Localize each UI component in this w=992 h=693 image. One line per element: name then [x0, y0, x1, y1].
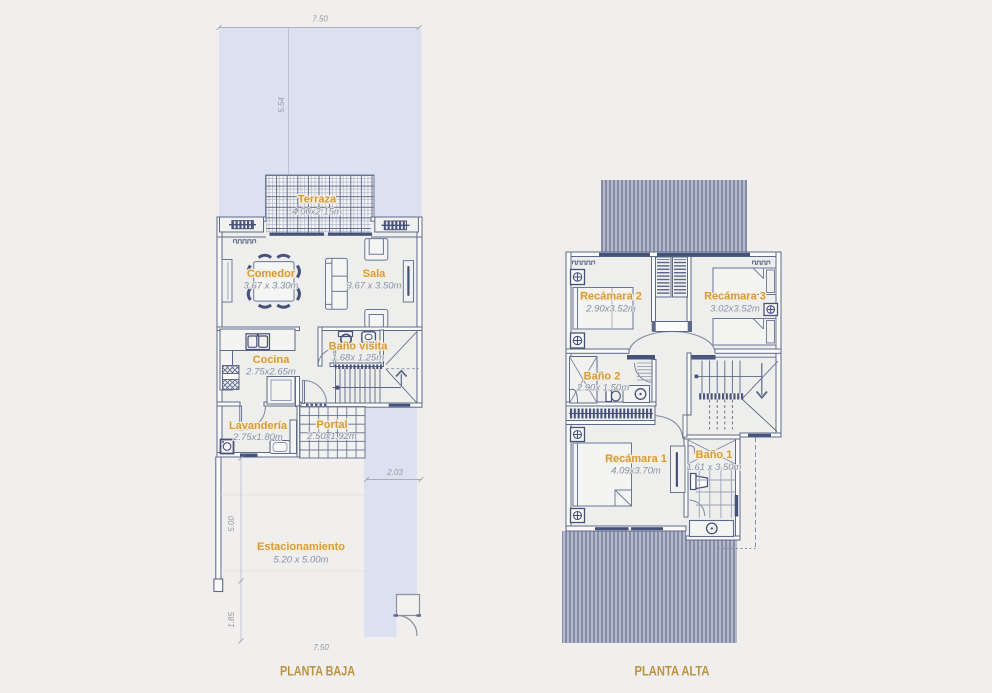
- svg-text:Portal: Portal: [316, 419, 347, 431]
- svg-text:Recámara 3: Recámara 3: [704, 291, 766, 303]
- svg-text:Terraza: Terraza: [298, 194, 337, 206]
- svg-text:Baño visita: Baño visita: [329, 341, 389, 353]
- svg-text:2.90x3.52m: 2.90x3.52m: [585, 304, 636, 315]
- svg-text:Estacionamiento: Estacionamiento: [257, 541, 345, 553]
- svg-text:7.50: 7.50: [312, 15, 328, 24]
- svg-text:4.00x2.15m: 4.00x2.15m: [292, 207, 342, 218]
- svg-text:1.61 x 3.50m: 1.61 x 3.50m: [687, 462, 742, 473]
- svg-text:5.00: 5.00: [227, 516, 236, 532]
- svg-text:5.54: 5.54: [277, 97, 286, 113]
- svg-text:Sala: Sala: [363, 268, 387, 280]
- svg-text:Baño 1: Baño 1: [696, 449, 733, 461]
- svg-text:2.90x 1.50m: 2.90x 1.50m: [576, 383, 629, 394]
- svg-text:7.50: 7.50: [313, 643, 329, 652]
- svg-text:1.68x 1.25m: 1.68x 1.25m: [332, 353, 384, 364]
- svg-text:2.75x2.65m: 2.75x2.65m: [245, 367, 296, 378]
- svg-text:4.09x3.70m: 4.09x3.70m: [611, 466, 661, 477]
- svg-text:2.50x1.92m: 2.50x1.92m: [306, 431, 357, 442]
- svg-text:3.02x3.52m: 3.02x3.52m: [710, 304, 760, 315]
- svg-text:Recámara 2: Recámara 2: [580, 291, 642, 303]
- svg-text:3.67 x 3.30m: 3.67 x 3.30m: [244, 281, 299, 292]
- svg-text:2.03: 2.03: [386, 468, 403, 477]
- svg-text:Recámara 1: Recámara 1: [605, 453, 667, 465]
- svg-text:Lavandería: Lavandería: [229, 420, 288, 432]
- svg-text:Cocina: Cocina: [253, 354, 291, 366]
- svg-text:5.20 x 5.00m: 5.20 x 5.00m: [274, 555, 329, 566]
- svg-text:PLANTA ALTA: PLANTA ALTA: [635, 664, 710, 679]
- svg-text:3.67 x 3.50m: 3.67 x 3.50m: [347, 281, 402, 292]
- svg-text:Baño 2: Baño 2: [584, 371, 621, 383]
- svg-text:2.75x1.80m: 2.75x1.80m: [232, 432, 283, 443]
- svg-text:Comedor: Comedor: [247, 268, 296, 280]
- svg-text:PLANTA BAJA: PLANTA BAJA: [280, 664, 355, 679]
- svg-text:1.85: 1.85: [227, 612, 236, 628]
